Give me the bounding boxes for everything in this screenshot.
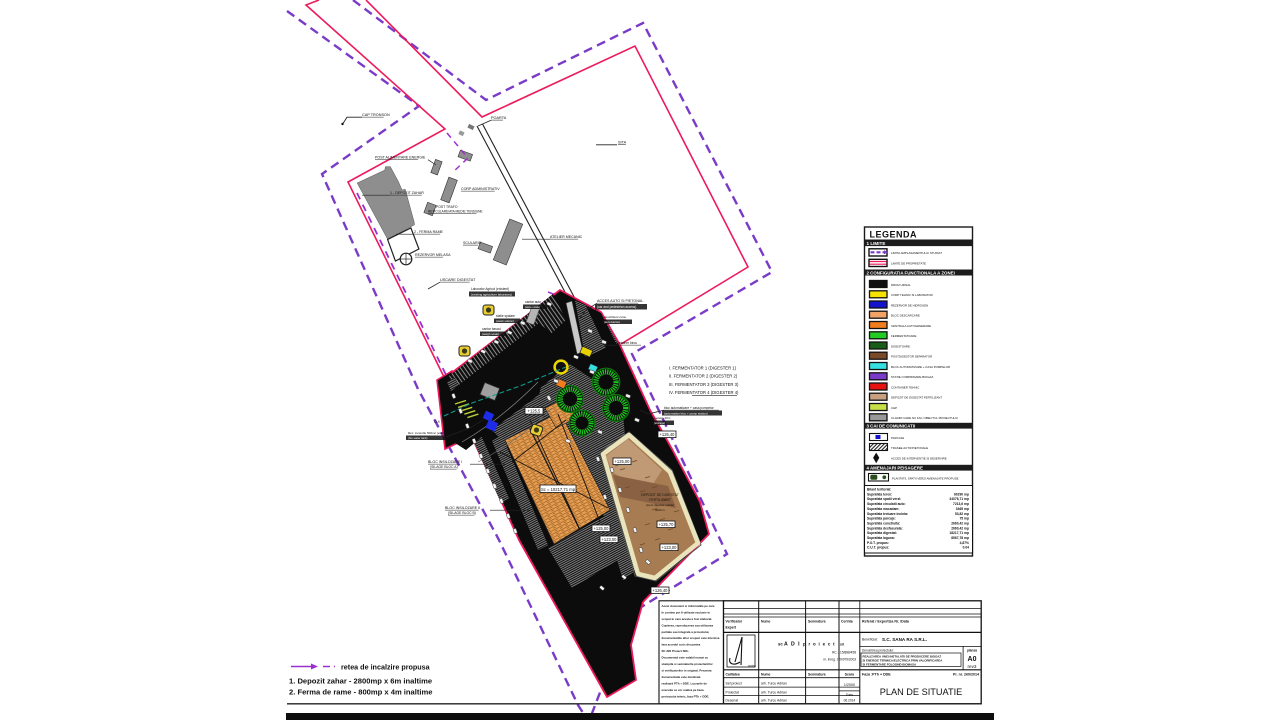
svg-text:plansa: plansa bbox=[967, 649, 977, 653]
svg-text:fara acordul scris din partea: fara acordul scris din partea bbox=[662, 643, 701, 647]
svg-text:FERTILIZANT: FERTILIZANT bbox=[649, 498, 670, 502]
svg-text:RETICULARE/ATA MEDIE TENSIUNE: RETICULARE/ATA MEDIE TENSIUNE bbox=[428, 210, 483, 214]
svg-text:Suprafata parcaje:: Suprafata parcaje: bbox=[867, 517, 896, 521]
svg-text:Pr. nr. 260/2014: Pr. nr. 260/2014 bbox=[953, 673, 979, 677]
svg-text:FERMENTATOARE: FERMENTATOARE bbox=[891, 334, 916, 338]
svg-text:I. FERMENTATOR 1 (DIGESTER 1): I. FERMENTATOR 1 (DIGESTER 1) bbox=[669, 366, 737, 371]
svg-text:container birou: container birou bbox=[616, 341, 637, 345]
svg-text:II. FERMENTATOR 2 (DIGESTER 2: II. FERMENTATOR 2 (DIGESTER 2) bbox=[669, 374, 738, 379]
svg-text:arh. Turcu Adrian: arh. Turcu Adrian bbox=[761, 682, 787, 686]
svg-text:POST ALIMENTARE ENERGIE: POST ALIMENTARE ENERGIE bbox=[375, 156, 426, 160]
svg-text:USCARE DIGESTAT: USCARE DIGESTAT bbox=[440, 278, 476, 282]
svg-text:DEPOZIT DE DIGESTAT: DEPOZIT DE DIGESTAT bbox=[641, 493, 679, 497]
svg-text:stampila si semnaturile proiec: stampila si semnaturile proiectantilor bbox=[662, 662, 714, 666]
svg-text:3 CAI DE COMUNICATII: 3 CAI DE COMUNICATII bbox=[867, 424, 916, 429]
svg-text:bloc automatizare + casa pompe: bloc automatizare + casa pompelor bbox=[664, 406, 715, 410]
svg-text:(storage): (storage) bbox=[654, 421, 665, 425]
svg-text:P.O.T. propus:: P.O.T. propus: bbox=[867, 541, 889, 545]
svg-text:Rez. incendiu 500mc (existent): Rez. incendiu 500mc (existent) bbox=[408, 431, 449, 435]
svg-text:4 AMENAJARI PEISAGERE: 4 AMENAJARI PEISAGERE bbox=[867, 466, 924, 471]
svg-text:srl: srl bbox=[840, 643, 844, 647]
svg-text:(auto barrier): (auto barrier) bbox=[604, 320, 620, 324]
svg-text:Laborator Agricol (existent): Laborator Agricol (existent) bbox=[471, 287, 509, 291]
svg-text:III. FERMENTATOR 3 (DIGESTER 3: III. FERMENTATOR 3 (DIGESTER 3) bbox=[669, 382, 739, 387]
svg-text:(SILAGE BLOC A): (SILAGE BLOC A) bbox=[430, 465, 458, 469]
svg-text:LEGENDA: LEGENDA bbox=[870, 230, 918, 240]
svg-text:+125,5: +125,5 bbox=[528, 409, 541, 414]
svg-text:A D I: A D I bbox=[784, 642, 801, 648]
svg-text:documentatiile altor scopuri e: documentatiile altor scopuri este interz… bbox=[662, 636, 720, 640]
svg-text:ACCES AUTO SI PIETONAL: ACCES AUTO SI PIETONAL bbox=[597, 299, 643, 303]
svg-text:Suprafata laguna:: Suprafata laguna: bbox=[867, 536, 895, 540]
svg-text:+123,00: +123,00 bbox=[662, 545, 678, 550]
svg-text:partiala sau integrala a proie: partiala sau integrala a proiectului, bbox=[662, 630, 710, 634]
svg-text:2660,42 mp: 2660,42 mp bbox=[951, 526, 969, 530]
svg-text:(automation bloc + pump statio: (automation bloc + pump station) bbox=[664, 411, 708, 415]
svg-text:18217,71 mp: 18217,71 mp bbox=[949, 531, 969, 535]
svg-text:POST TRAFO: POST TRAFO bbox=[436, 205, 458, 209]
svg-text:Cerinta: Cerinta bbox=[841, 620, 853, 624]
svg-text:LIMITA AMPLASAMENTULUI STUDIAT: LIMITA AMPLASAMENTULUI STUDIAT bbox=[891, 251, 942, 255]
svg-text:retea de incalzire propusa: retea de incalzire propusa bbox=[341, 663, 431, 672]
svg-text:Referat / Expertiza Nr. /Data: Referat / Expertiza Nr. /Data bbox=[862, 620, 910, 624]
svg-text:BLOC INSILOZARE II: BLOC INSILOZARE II bbox=[445, 506, 480, 510]
svg-text:75 mp: 75 mp bbox=[959, 517, 969, 521]
svg-text:+126,40: +126,40 bbox=[653, 588, 669, 593]
svg-text:(auto scale): (auto scale) bbox=[525, 305, 540, 309]
svg-text:1 - DEPOZIT ZAHAR: 1 - DEPOZIT ZAHAR bbox=[390, 191, 424, 195]
svg-text:LIMITE DE PROPRIETATE: LIMITE DE PROPRIETATE bbox=[891, 262, 926, 266]
svg-text:POARTA: POARTA bbox=[491, 116, 507, 120]
svg-text:PARCAJE: PARCAJE bbox=[891, 436, 904, 440]
svg-text:ATELIER MECANIC: ATELIER MECANIC bbox=[550, 235, 583, 239]
svg-text:statie spalare: statie spalare bbox=[496, 314, 515, 318]
svg-text:CORP TEHNIC SI LABORATOR: CORP TEHNIC SI LABORATOR bbox=[891, 293, 933, 297]
svg-text:Faza :PTh + DDE: Faza :PTh + DDE bbox=[862, 673, 891, 677]
svg-text:CORP ADMINISTRATIV: CORP ADMINISTRATIV bbox=[461, 187, 500, 191]
svg-text:Suprafata spatii verzi:: Suprafata spatii verzi: bbox=[867, 497, 901, 501]
svg-text:53,82 mp: 53,82 mp bbox=[955, 512, 969, 516]
svg-text:Semnatura: Semnatura bbox=[808, 620, 826, 624]
svg-text:0.04: 0.04 bbox=[963, 546, 970, 550]
svg-text:arh. Turcu Adrian: arh. Turcu Adrian bbox=[761, 690, 787, 694]
svg-text:Suprafata circulatii auto:: Suprafata circulatii auto: bbox=[867, 502, 906, 506]
svg-text:executie se vor realiza pe baz: executie se vor realiza pe baza bbox=[662, 688, 704, 692]
svg-text:RC J 15/888/458: RC J 15/888/458 bbox=[832, 651, 856, 655]
svg-text:REZERVOR DE HIDROGEN: REZERVOR DE HIDROGEN bbox=[891, 303, 928, 307]
svg-text:2. Ferma de rame - 800mp x 4m: 2. Ferma de rame - 800mp x 4m inaltime bbox=[289, 688, 433, 697]
svg-text:Documentul este valabil numai: Documentul este valabil numai cu bbox=[662, 656, 709, 660]
svg-text:+125,70: +125,70 bbox=[659, 522, 675, 527]
svg-text:2660,42 mp: 2660,42 mp bbox=[951, 522, 969, 526]
svg-text:ACCES DE INTERVENTIE SI DESERV: ACCES DE INTERVENTIE SI DESERVIRE bbox=[891, 457, 947, 461]
svg-text:TRASEE AUTO/PIETONALE: TRASEE AUTO/PIETONALE bbox=[891, 446, 928, 450]
svg-text:arh. Turcu Adrian: arh. Turcu Adrian bbox=[761, 699, 787, 703]
svg-text:CUI: CUI bbox=[434, 420, 440, 424]
svg-text:Bilant teritorial:: Bilant teritorial: bbox=[867, 488, 891, 492]
svg-text:Copierea, reproducerea sau uti: Copierea, reproducerea sau utilizarea bbox=[662, 623, 714, 627]
svg-text:4,87%: 4,87% bbox=[960, 541, 969, 545]
svg-text:Sef proiect: Sef proiect bbox=[726, 682, 742, 686]
svg-text:si verificatorilor in original: si verificatorilor in original. Prezenta bbox=[662, 669, 712, 673]
svg-text:CHP: CHP bbox=[891, 406, 897, 410]
svg-text:CAP TRONSON: CAP TRONSON bbox=[362, 113, 390, 117]
svg-text:proiectului tehnic, faza PTh +: proiectului tehnic, faza PTh + DDE. bbox=[662, 694, 710, 698]
svg-text:sc: sc bbox=[778, 642, 783, 647]
svg-text:(wash station): (wash station) bbox=[496, 319, 514, 323]
svg-text:deschidere rulou: deschidere rulou bbox=[604, 315, 627, 319]
svg-text:nr. inreg. J29/979/2003: nr. inreg. J29/979/2003 bbox=[823, 658, 856, 662]
svg-text:BLOC INSILOZARE I: BLOC INSILOZARE I bbox=[428, 460, 462, 464]
svg-text:Suprafata teren:: Suprafata teren: bbox=[867, 492, 892, 496]
svg-text:Desenat: Desenat bbox=[726, 699, 739, 703]
svg-text:PLANTATII, SPATII VERZI AMENAJ: PLANTATII, SPATII VERZI AMENAJATE PROPUS… bbox=[892, 477, 959, 481]
svg-text:7213,6 mp: 7213,6 mp bbox=[953, 502, 969, 506]
svg-text:Beneficiar:: Beneficiar: bbox=[862, 638, 878, 642]
svg-text:Denumirea proiectului:: Denumirea proiectului: bbox=[862, 649, 894, 653]
svg-text:Suprafata desfasurata:: Suprafata desfasurata: bbox=[867, 526, 903, 530]
svg-text:(semi digestie solida): (semi digestie solida) bbox=[646, 503, 674, 507]
svg-text:realizarii PTh + DDE. Lucraril: realizarii PTh + DDE. Lucrarile de bbox=[662, 681, 708, 685]
svg-text:Sc = 10217,71 mp: Sc = 10217,71 mp bbox=[541, 487, 576, 492]
svg-text:34076,71 mp: 34076,71 mp bbox=[949, 497, 969, 501]
svg-text:melasa 20m: melasa 20m bbox=[654, 416, 671, 420]
svg-text:POSTDIGESTOR SEPARATOR: POSTDIGESTOR SEPARATOR bbox=[891, 355, 932, 359]
svg-text:le contine pot fi utilizate ex: le contine pot fi utilizate exclusiv in bbox=[662, 611, 711, 615]
svg-text:SC ADI Proiect SRL.: SC ADI Proiect SRL. bbox=[662, 649, 690, 653]
svg-text:(car and pedestrian access): (car and pedestrian access) bbox=[597, 305, 636, 309]
svg-text:IV. FERMENTATOR 4 (DIGESTER 4): IV. FERMENTATOR 4 (DIGESTER 4) bbox=[669, 390, 739, 395]
svg-text:8567,78 mp: 8567,78 mp bbox=[951, 536, 969, 540]
svg-text:60290 mp: 60290 mp bbox=[954, 492, 969, 496]
svg-text:CENTRALA AUTOGENERARE: CENTRALA AUTOGENERARE bbox=[891, 324, 931, 328]
svg-text:3465 mp: 3465 mp bbox=[956, 507, 969, 511]
svg-text:(existing agriculture laborato: (existing agriculture laboratory) bbox=[471, 292, 512, 296]
svg-text:p r o i e c t: p r o i e c t bbox=[803, 642, 835, 647]
svg-text:SI FERMENTARE FOLOSIND BIOMASA: SI FERMENTARE FOLOSIND BIOMASA bbox=[863, 663, 917, 667]
svg-text:(fire water tank): (fire water tank) bbox=[408, 436, 427, 440]
svg-text:(SILAGE BLOC B): (SILAGE BLOC B) bbox=[448, 511, 476, 515]
svg-text:SITA: SITA bbox=[618, 141, 627, 145]
svg-text:Suprafata macadam:: Suprafata macadam: bbox=[867, 507, 899, 511]
svg-text:Expert: Expert bbox=[726, 626, 737, 630]
svg-text:Suprafata construita:: Suprafata construita: bbox=[867, 522, 900, 526]
svg-text:S.C. SANA RA S.R.L.: S.C. SANA RA S.R.L. bbox=[882, 637, 927, 642]
svg-text:STATIE COMPRIMARE BIOGAZ: STATIE COMPRIMARE BIOGAZ bbox=[891, 375, 933, 379]
svg-text:9000 m: 9000 m bbox=[655, 508, 666, 512]
svg-text:A0: A0 bbox=[968, 656, 977, 663]
svg-text:CONTAINER TEHNIC: CONTAINER TEHNIC bbox=[891, 385, 919, 389]
svg-text:DIGESTOARE: DIGESTOARE bbox=[891, 344, 910, 348]
svg-text:PLAN DE SITUATIE: PLAN DE SITUATIE bbox=[880, 687, 963, 697]
svg-text:DRUM UZINAL: DRUM UZINAL bbox=[891, 283, 911, 287]
svg-text:1/2000: 1/2000 bbox=[844, 683, 855, 687]
svg-text:BLOC AUTOMATIZARE + CASA POMPE: BLOC AUTOMATIZARE + CASA POMPELOR bbox=[891, 365, 950, 369]
svg-text:REZERVOR MELASA: REZERVOR MELASA bbox=[415, 253, 451, 257]
svg-text:Verificator: Verificator bbox=[726, 620, 743, 624]
svg-text:(weigh scale): (weigh scale) bbox=[482, 332, 499, 336]
svg-text:Acest document si informatiile: Acest document si informatiile pe care bbox=[662, 604, 715, 608]
svg-text:SCULARIE: SCULARIE bbox=[463, 241, 482, 245]
svg-text:+126,40: +126,40 bbox=[660, 432, 676, 437]
svg-text:scopul in care acesta a fost e: scopul in care acesta a fost elaborat. bbox=[662, 617, 713, 621]
svg-text:2 CONFIGURATIA FUNCTIONALA A: 2 CONFIGURATIA FUNCTIONALA A ZONEI bbox=[867, 270, 955, 275]
svg-text:documentatie este destinata: documentatie este destinata bbox=[662, 675, 701, 679]
svg-text:rev3: rev3 bbox=[968, 664, 977, 669]
svg-text:1. Depozit zahar - 2800mp x 6m: 1. Depozit zahar - 2800mp x 6m inaltime bbox=[289, 677, 432, 686]
svg-text:Calitatea: Calitatea bbox=[726, 673, 740, 677]
svg-text:Suprafata trotuare incinta:: Suprafata trotuare incinta: bbox=[867, 512, 908, 516]
svg-text:Proiectat: Proiectat bbox=[726, 690, 739, 694]
svg-text:+123,00: +123,00 bbox=[602, 537, 618, 542]
svg-text:cantar bascul: cantar bascul bbox=[482, 327, 501, 331]
svg-text:DEPOZIT DE DIGESTAT FERTILIZAN: DEPOZIT DE DIGESTAT FERTILIZANT bbox=[891, 396, 942, 400]
svg-text:C.U.T. propus:: C.U.T. propus: bbox=[867, 546, 889, 550]
svg-text:BLOC DESCARCARE: BLOC DESCARCARE bbox=[891, 314, 920, 318]
svg-text:Nume: Nume bbox=[761, 673, 771, 677]
svg-text:2 - FERMA RAME: 2 - FERMA RAME bbox=[414, 230, 444, 234]
svg-text:06.2014: 06.2014 bbox=[844, 699, 856, 703]
svg-text:Semnatura: Semnatura bbox=[808, 673, 826, 677]
svg-text:+125,00: +125,00 bbox=[615, 459, 631, 464]
svg-text:Data: Data bbox=[846, 693, 853, 697]
svg-text:+125,00: +125,00 bbox=[594, 526, 610, 531]
svg-text:1 LIMITE: 1 LIMITE bbox=[867, 241, 886, 246]
svg-text:Suprafata digestat:: Suprafata digestat: bbox=[867, 531, 897, 535]
svg-text:cantar auto: cantar auto bbox=[525, 300, 541, 304]
svg-text:Scara: Scara bbox=[845, 673, 854, 677]
svg-text:Nume: Nume bbox=[761, 620, 771, 624]
svg-text:CLADIRI CARE NU FAC OBIECTUL P: CLADIRI CARE NU FAC OBIECTUL PROIECTULUI bbox=[891, 416, 958, 420]
